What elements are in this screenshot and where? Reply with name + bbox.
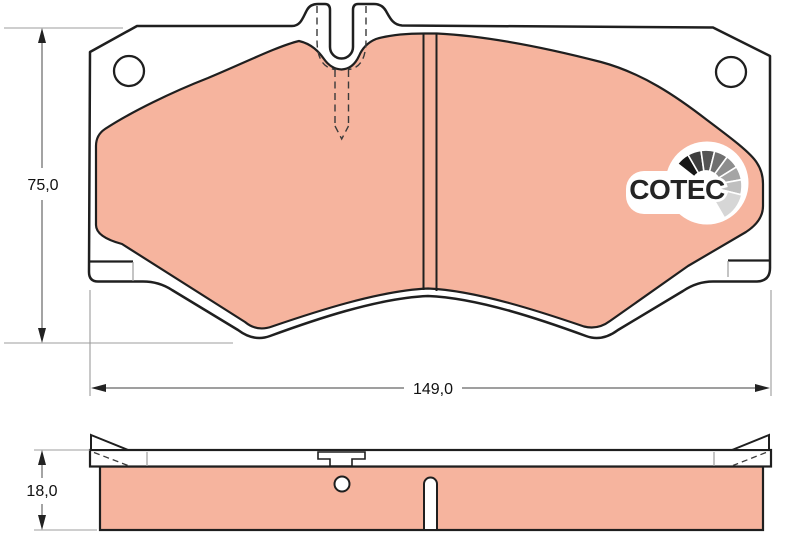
arrow-up-icon [38, 450, 46, 465]
mounting-hole-left [114, 56, 144, 86]
side-right-bent-tab [732, 435, 769, 450]
dim-height-label: 75,0 [27, 177, 58, 194]
dim-width-label: 149,0 [413, 381, 453, 398]
front-view: COTEC [89, 4, 770, 338]
side-left-bent-tab [91, 435, 128, 450]
technical-drawing-canvas: COTEC 75,0 [0, 0, 800, 533]
dimension-width: 149,0 [90, 290, 771, 398]
side-view [90, 435, 771, 530]
arrow-up-icon [38, 28, 46, 43]
logo-text: COTEC [629, 174, 725, 205]
arrow-down-icon [38, 328, 46, 343]
side-backplate-strip [90, 450, 771, 467]
arrow-down-icon [38, 515, 46, 530]
side-hole [335, 477, 350, 492]
dimension-thickness: 18,0 [26, 450, 97, 530]
arrow-right-icon [755, 384, 770, 392]
mounting-hole-right [716, 57, 746, 87]
brake-pad-drawing: COTEC 75,0 [0, 0, 800, 533]
arrow-left-icon [91, 384, 106, 392]
side-wear-groove [424, 478, 437, 530]
dim-thickness-label: 18,0 [26, 483, 57, 500]
